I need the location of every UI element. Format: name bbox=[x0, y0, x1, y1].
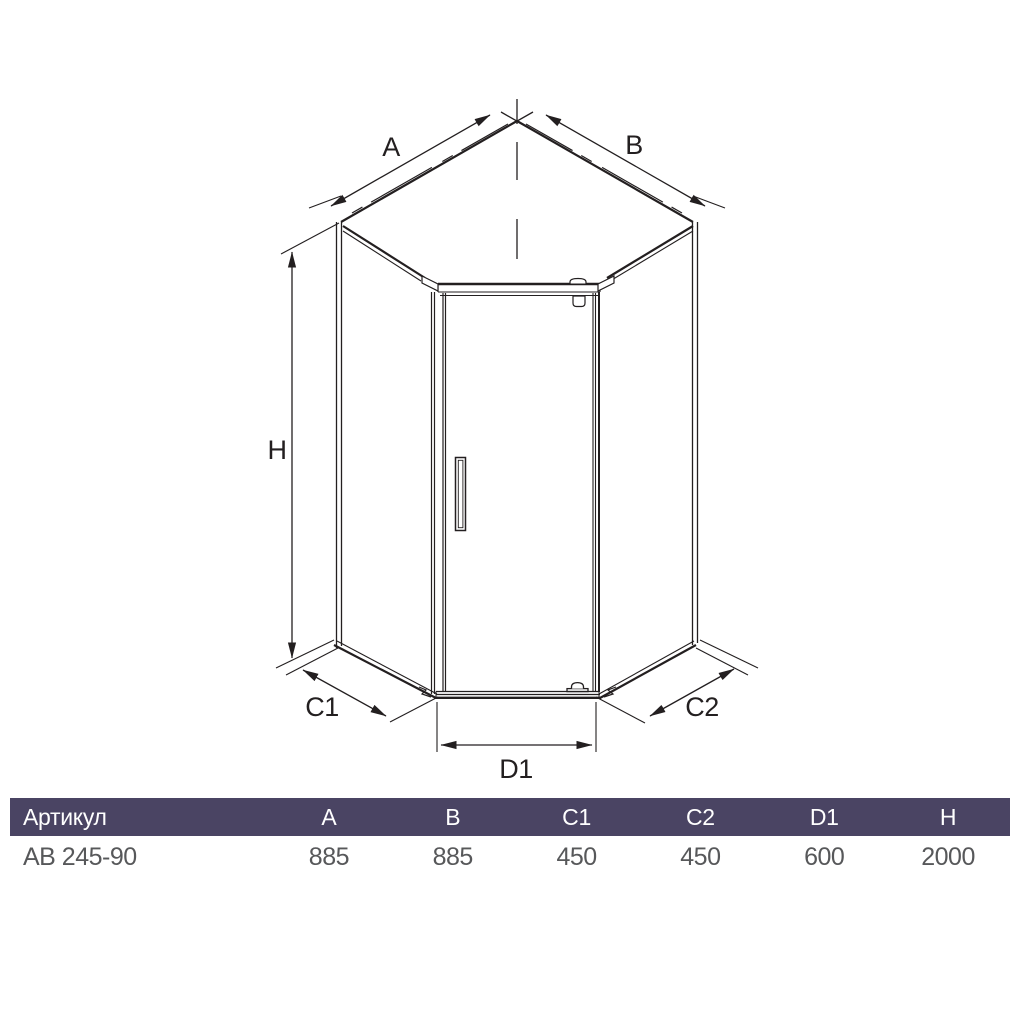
left-wall-post bbox=[337, 222, 342, 648]
left-glass-panel bbox=[334, 226, 437, 698]
dimensions bbox=[276, 115, 758, 752]
spec-table: Артикул A B C1 C2 D1 H AB 245-90 885 885… bbox=[10, 798, 1010, 878]
product-spec-page: A B H C1 C2 D1 Артикул A B C1 C2 D1 H AB… bbox=[0, 0, 1024, 1024]
witness-line bbox=[286, 648, 338, 675]
label-d1: D1 bbox=[499, 754, 533, 784]
door-bottom-hinge bbox=[567, 683, 588, 692]
witness-line bbox=[696, 648, 748, 675]
spec-table-row: AB 245-90 885 885 450 450 600 2000 bbox=[10, 836, 1010, 878]
label-h: H bbox=[268, 435, 287, 465]
cell-h: 2000 bbox=[886, 843, 1010, 872]
enclosure-structure bbox=[334, 99, 698, 698]
cell-c2: 450 bbox=[638, 843, 762, 872]
label-c2: C2 bbox=[685, 692, 719, 722]
door-sill bbox=[434, 692, 601, 698]
dimension-labels: A B H C1 C2 D1 bbox=[268, 130, 719, 784]
door-handle bbox=[456, 458, 466, 531]
top-bar-left-bracket bbox=[422, 276, 438, 291]
col-header-article: Артикул bbox=[10, 804, 267, 831]
witness-line bbox=[390, 697, 438, 722]
cell-b: 885 bbox=[391, 843, 515, 872]
label-b: B bbox=[625, 130, 643, 160]
inner-dashed-right bbox=[526, 124, 682, 213]
col-header-d1: D1 bbox=[762, 804, 886, 831]
cell-article: AB 245-90 bbox=[10, 843, 267, 872]
spec-table-header: Артикул A B C1 C2 D1 H bbox=[10, 798, 1010, 836]
dimension-d1 bbox=[437, 702, 596, 752]
cell-c1: 450 bbox=[515, 843, 639, 872]
right-glass-panel bbox=[599, 226, 696, 698]
label-c1: C1 bbox=[305, 692, 339, 722]
col-header-b: B bbox=[391, 804, 515, 831]
dimension-b bbox=[546, 115, 725, 208]
inner-dashed-left bbox=[352, 124, 508, 213]
witness-line bbox=[309, 196, 341, 208]
cell-d1: 600 bbox=[762, 843, 886, 872]
top-edges bbox=[341, 99, 693, 259]
cell-a: 885 bbox=[267, 843, 391, 872]
col-header-c1: C1 bbox=[515, 804, 639, 831]
witness-line bbox=[281, 223, 339, 254]
right-wall-post bbox=[693, 222, 698, 645]
label-a: A bbox=[382, 132, 400, 162]
door-top-bar bbox=[422, 276, 614, 296]
witness-line bbox=[596, 697, 645, 723]
col-header-c2: C2 bbox=[638, 804, 762, 831]
shower-enclosure-diagram: A B H C1 C2 D1 bbox=[0, 0, 1024, 795]
col-header-h: H bbox=[886, 804, 1010, 831]
col-header-a: A bbox=[267, 804, 391, 831]
top-bar-right-bracket bbox=[598, 276, 614, 291]
